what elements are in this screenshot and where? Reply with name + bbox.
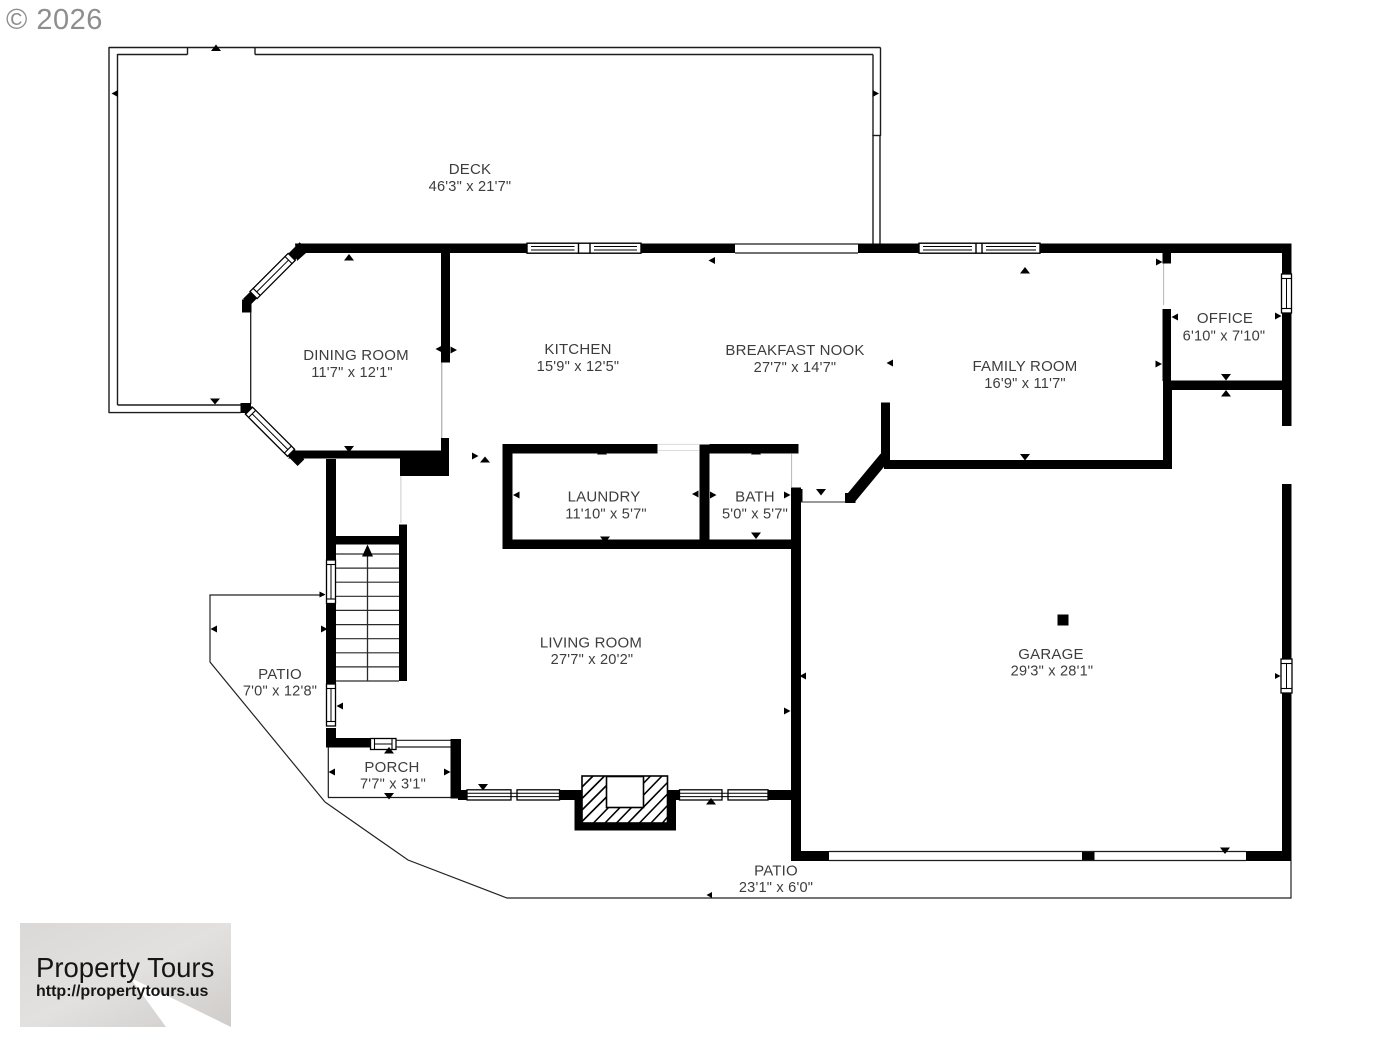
svg-text:27'7" x 14'7": 27'7" x 14'7" (754, 360, 837, 376)
svg-text:29'3" x 28'1": 29'3" x 28'1" (1011, 664, 1094, 680)
svg-text:6'10" x 7'10": 6'10" x 7'10" (1183, 329, 1266, 345)
svg-text:LIVING ROOM: LIVING ROOM (540, 635, 642, 652)
svg-text:KITCHEN: KITCHEN (544, 341, 611, 358)
svg-text:PATIO: PATIO (754, 863, 798, 880)
svg-text:11'7" x 12'1": 11'7" x 12'1" (311, 365, 393, 381)
svg-text:7'0" x 12'8": 7'0" x 12'8" (243, 684, 317, 700)
svg-text:FAMILY ROOM: FAMILY ROOM (973, 358, 1078, 375)
svg-text:OFFICE: OFFICE (1197, 310, 1253, 327)
svg-text:GARAGE: GARAGE (1018, 646, 1083, 663)
svg-text:LAUNDRY: LAUNDRY (568, 489, 641, 506)
svg-text:23'1" x 6'0": 23'1" x 6'0" (739, 880, 813, 896)
svg-text:PATIO: PATIO (258, 666, 302, 683)
svg-text:BATH: BATH (735, 489, 775, 506)
svg-text:7'7" x 3'1": 7'7" x 3'1" (360, 777, 426, 793)
svg-text:46'3" x 21'7": 46'3" x 21'7" (429, 179, 512, 195)
svg-text:Property Tours: Property Tours (36, 952, 214, 983)
svg-text:15'9" x 12'5": 15'9" x 12'5" (537, 359, 620, 375)
svg-text:11'10" x 5'7": 11'10" x 5'7" (565, 507, 647, 523)
svg-text:DECK: DECK (449, 161, 491, 178)
svg-text:http://propertytours.us: http://propertytours.us (36, 983, 209, 1000)
svg-text:BREAKFAST NOOK: BREAKFAST NOOK (725, 342, 864, 359)
svg-text:16'9" x 11'7": 16'9" x 11'7" (984, 376, 1066, 392)
svg-text:27'7" x 20'2": 27'7" x 20'2" (551, 652, 634, 668)
svg-text:DINING ROOM: DINING ROOM (303, 347, 409, 364)
svg-text:5'0" x 5'7": 5'0" x 5'7" (722, 507, 788, 523)
svg-text:© 2026: © 2026 (6, 4, 103, 36)
svg-text:PORCH: PORCH (364, 759, 419, 776)
